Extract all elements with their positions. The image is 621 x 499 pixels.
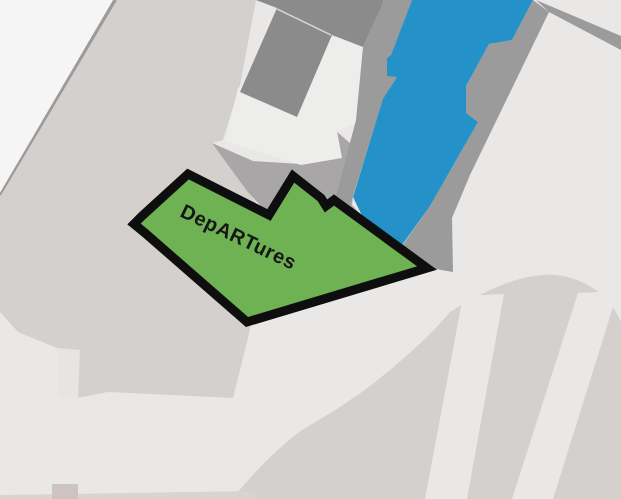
small-block — [52, 484, 78, 499]
map-svg: DepARTures — [0, 0, 621, 499]
map-canvas: DepARTures — [0, 0, 621, 499]
ground-notch — [57, 348, 80, 398]
